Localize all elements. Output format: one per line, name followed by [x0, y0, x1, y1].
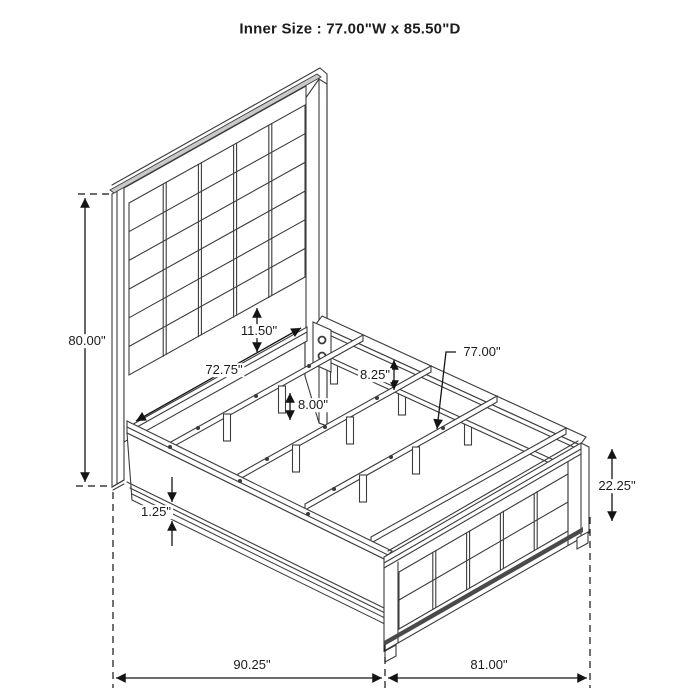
dim-slat-inner-width: 77.00": [461, 345, 502, 359]
dim-side-rail-height: 8.25": [358, 368, 392, 382]
dim-rail-bottom-thickness: 1.25": [139, 505, 173, 519]
dim-panel-to-rail-gap: 11.50": [239, 324, 279, 338]
page-title: Inner Size : 77.00"W x 85.50"D: [239, 21, 460, 38]
bed-dimension-diagram: [0, 0, 700, 700]
dim-headboard-height: 80.00": [66, 334, 107, 348]
dim-overall-width: 81.00": [468, 658, 509, 672]
side-rail-left: [127, 421, 392, 626]
dim-footboard-height: 22.25": [596, 479, 637, 493]
dim-headboard-inner-width: 72.75": [203, 363, 244, 377]
dim-overall-depth: 90.25": [231, 658, 272, 672]
dim-slat-leg-height: 8.00": [296, 398, 330, 412]
headboard: [110, 68, 327, 490]
dimension-diagram-page: Inner Size : 77.00"W x 85.50"D 80.00" 72…: [0, 0, 700, 700]
